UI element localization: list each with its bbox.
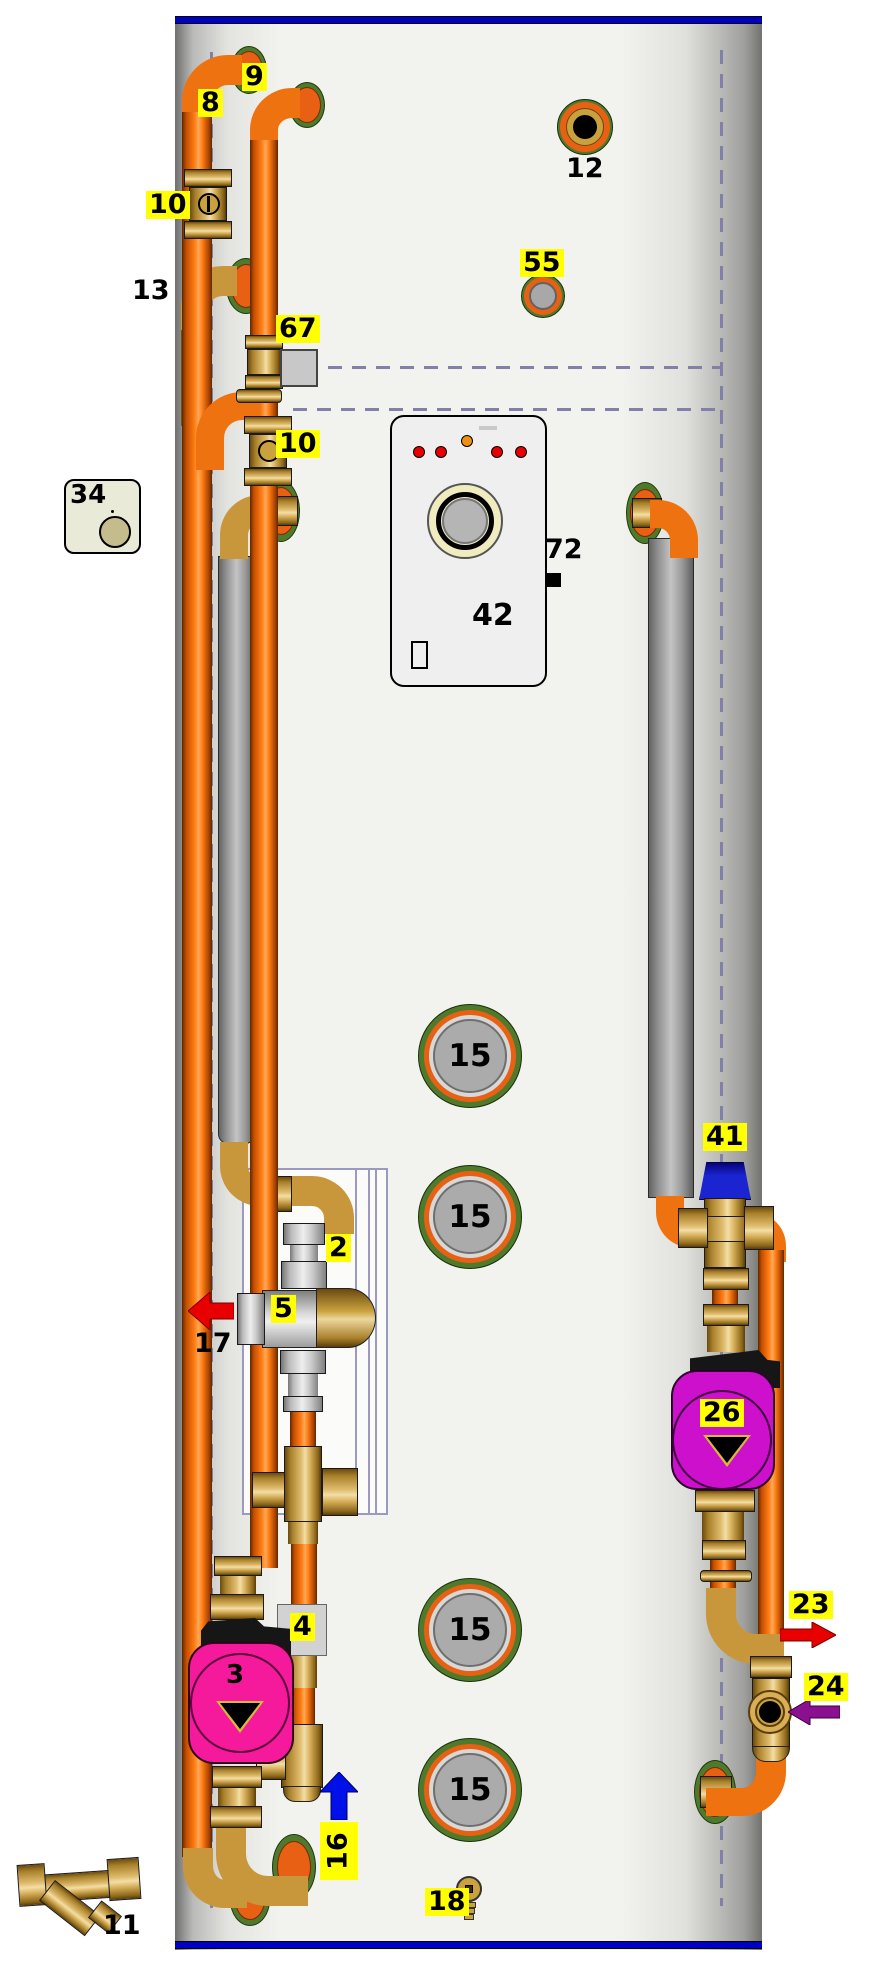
label-17: 17	[194, 1330, 232, 1358]
label-67: 67	[276, 315, 320, 343]
fitting-2-nut-2	[281, 1261, 327, 1289]
pump26-inlet-nut-1	[703, 1268, 749, 1290]
side-port-15-3: 15	[418, 1578, 522, 1682]
pump26-arrow	[707, 1437, 747, 1463]
pump26-inlet-taper	[707, 1326, 745, 1352]
label-23: 23	[789, 1591, 833, 1619]
coil-dashed-line-top2	[293, 408, 720, 411]
label-4: 4	[290, 1613, 315, 1641]
fitting-2-nut-1	[283, 1223, 325, 1245]
pump3-inlet-nut-1	[214, 1556, 262, 1576]
pump3-inlet-nut-2	[210, 1594, 264, 1620]
pump3-outlet-stem	[218, 1788, 256, 1806]
valve-41-right-nut	[744, 1206, 774, 1250]
panel-led-2	[435, 446, 447, 458]
label-8: 8	[198, 89, 223, 117]
port-label: 15	[433, 1593, 507, 1667]
port-label: 15	[433, 1753, 507, 1827]
right-line-bottom-elbow	[706, 1758, 786, 1816]
pump3-arrow	[220, 1703, 260, 1729]
pipe-4-upper	[291, 1544, 317, 1606]
panel-slot	[479, 426, 497, 430]
pipe-clip-right	[700, 1570, 752, 1582]
pump26-outlet-taper	[702, 1512, 744, 1540]
valve-5-lower-nut-2	[283, 1396, 323, 1412]
panel-led-3	[461, 435, 473, 447]
diagram-canvas: 15 15 15 15	[0, 0, 870, 1970]
tee-link-taper	[288, 1522, 318, 1544]
label-9: 9	[242, 63, 267, 91]
label-24: 24	[804, 1673, 848, 1701]
sensor-67-tee	[247, 349, 281, 375]
label-26: 26	[700, 1399, 744, 1427]
label-72: 72	[545, 536, 583, 564]
boss-12-hole	[573, 115, 597, 139]
pipe-clip-upper	[236, 389, 282, 403]
fitting-2-stem	[290, 1245, 318, 1261]
pump26-inlet-stub	[712, 1290, 738, 1304]
tee-link-right-cap	[322, 1468, 358, 1516]
side-port-15-1: 15	[418, 1004, 522, 1108]
valve-5-left-nut	[237, 1293, 265, 1345]
stat-34-label: 34	[70, 482, 106, 509]
panel-dial-knob[interactable]	[442, 498, 488, 544]
panel-led-4	[491, 446, 503, 458]
label-12: 12	[566, 155, 604, 183]
pipe-8-riser	[182, 112, 212, 1857]
valve-41-left-nut	[678, 1208, 708, 1248]
valve-41-blue-cap	[699, 1162, 751, 1200]
label-16-text: 16	[325, 1832, 353, 1870]
valve-5-brass-cap	[316, 1288, 376, 1348]
pump3-outlet-nut-2	[210, 1806, 262, 1828]
pump26-outlet-nut-1	[695, 1490, 755, 1512]
boss-55-cap	[529, 282, 557, 310]
valve-10-upper-cap-top	[184, 169, 232, 187]
strainer-11-nut-right	[107, 1857, 142, 1901]
label-10-lower: 10	[276, 430, 320, 458]
label-10-upper: 10	[146, 191, 190, 219]
pump26-outlet-nut-2	[702, 1540, 746, 1560]
label-5: 5	[271, 1295, 296, 1323]
pipe-valve5-drop	[290, 1412, 316, 1448]
coil-dashed-line-top1	[280, 366, 720, 369]
tank-bottom-rim	[175, 1941, 762, 1949]
sensor-67-pocket	[280, 349, 318, 387]
stat-34-dot	[111, 510, 114, 513]
label-18: 18	[425, 1888, 469, 1916]
label-13: 13	[132, 277, 170, 305]
tee-link-body	[284, 1446, 322, 1522]
pump26-inlet-nut-2	[703, 1304, 749, 1326]
label-3: 3	[226, 1662, 244, 1689]
valve-10-lower-cap-bottom	[244, 468, 292, 486]
valve-10-upper-cap-bottom	[184, 221, 232, 239]
pump3-inlet-stem	[220, 1576, 256, 1594]
flow-24-arrow-left	[788, 1699, 840, 1725]
panel-switch[interactable]	[411, 641, 428, 669]
valve-10-upper-wheel-spoke	[207, 196, 210, 212]
flow-23-arrow-right	[780, 1622, 836, 1648]
label-2: 2	[326, 1234, 351, 1262]
sensor-67-nut-bottom	[245, 375, 283, 389]
label-11: 11	[103, 1912, 141, 1940]
label-55: 55	[520, 249, 564, 277]
flow-17-arrow-left	[188, 1292, 234, 1330]
tee-4-bottom-cap	[283, 1786, 321, 1802]
valve-5-lower-nut-1	[280, 1350, 326, 1374]
label-41: 41	[703, 1123, 747, 1151]
panel-led-1	[413, 446, 425, 458]
sensor-72-marker	[547, 573, 561, 587]
stat-34-knob[interactable]	[99, 516, 131, 548]
panel-led-5	[515, 446, 527, 458]
panel-42-label: 42	[472, 600, 514, 632]
port-label: 15	[433, 1019, 507, 1093]
side-port-15-2: 15	[418, 1165, 522, 1269]
dip-tube-right	[648, 538, 694, 1198]
right-drop-collar	[750, 1656, 792, 1678]
bracket-line-2	[368, 1168, 370, 1515]
port-24-hole	[759, 1701, 781, 1723]
label-16: 16	[320, 1822, 358, 1880]
valve-5-lower-stem	[288, 1374, 318, 1396]
side-port-15-4: 15	[418, 1738, 522, 1842]
port-label: 15	[433, 1180, 507, 1254]
pump3-outlet-nut-1	[212, 1766, 262, 1788]
flow-16-arrow-up	[320, 1772, 358, 1820]
bracket-line-3	[375, 1168, 377, 1515]
tank-top-rim	[175, 16, 762, 24]
pipe-4-orange	[291, 1688, 315, 1724]
